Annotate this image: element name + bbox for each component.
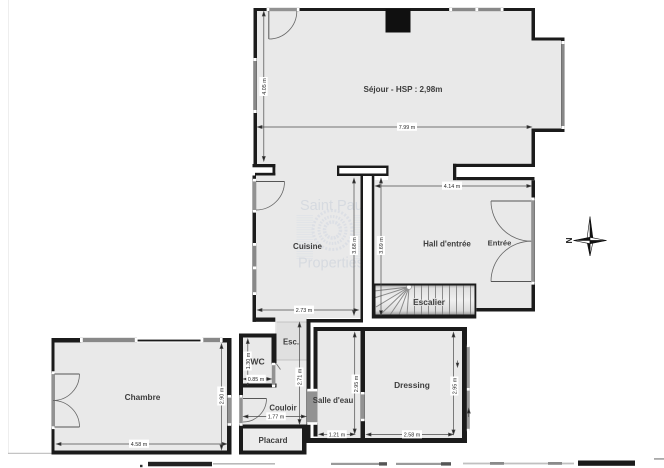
svg-text:2.71 m: 2.71 m — [298, 368, 304, 385]
svg-text:Chambre: Chambre — [125, 393, 161, 402]
svg-text:Esc.: Esc. — [283, 338, 299, 347]
svg-text:2.95 m: 2.95 m — [453, 377, 459, 394]
svg-text:4.14 m: 4.14 m — [444, 184, 461, 190]
svg-text:Cuisine: Cuisine — [293, 242, 322, 251]
svg-text:Saint Paul: Saint Paul — [300, 198, 366, 214]
svg-text:Séjour - HSP : 2,98m: Séjour - HSP : 2,98m — [363, 85, 442, 94]
svg-text:Couloir: Couloir — [269, 404, 296, 413]
svg-text:2.90 m: 2.90 m — [220, 387, 226, 404]
svg-text:Placard: Placard — [259, 436, 288, 445]
svg-text:Dressing: Dressing — [394, 380, 430, 390]
svg-text:3.68 m: 3.68 m — [352, 237, 358, 254]
svg-text:0.85 m: 0.85 m — [248, 377, 265, 383]
svg-text:Escalier: Escalier — [413, 297, 446, 307]
svg-text:3.69 m: 3.69 m — [379, 237, 385, 254]
svg-text:Hall d'entrée: Hall d'entrée — [423, 240, 471, 249]
svg-text:7.99 m: 7.99 m — [399, 125, 416, 131]
svg-text:2.95 m: 2.95 m — [354, 375, 360, 392]
svg-text:2.73 m: 2.73 m — [296, 308, 313, 314]
svg-text:Entrée: Entrée — [488, 239, 512, 248]
svg-text:2.58 m: 2.58 m — [404, 433, 421, 439]
svg-text:1.77 m: 1.77 m — [268, 415, 285, 421]
svg-text:1.21 m: 1.21 m — [329, 432, 346, 438]
svg-text:4.05 m: 4.05 m — [262, 78, 268, 95]
svg-text:N: N — [565, 237, 574, 243]
svg-text:4.58 m: 4.58 m — [131, 442, 148, 448]
svg-text:WC: WC — [250, 357, 264, 367]
svg-text:Salle d'eau: Salle d'eau — [313, 396, 354, 405]
